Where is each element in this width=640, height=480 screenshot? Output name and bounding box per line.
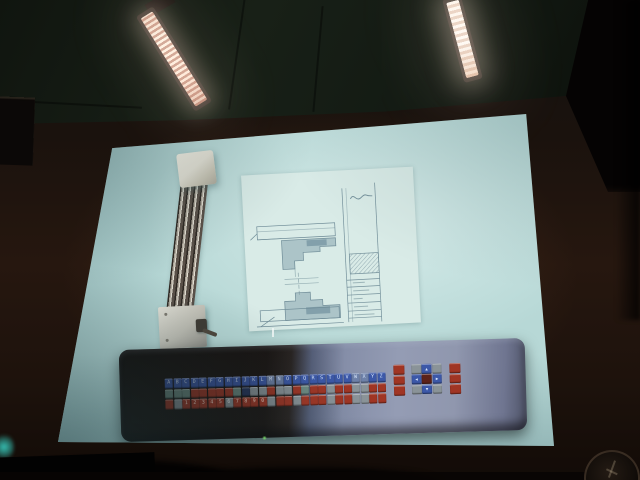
direction-pad: ▴◂▸▾ <box>411 363 442 394</box>
key <box>309 385 317 395</box>
drawing-sheet <box>241 167 421 332</box>
plotter-carriage <box>158 305 207 349</box>
key <box>343 384 351 394</box>
key-S: S <box>318 374 326 384</box>
key-D: D <box>190 378 198 388</box>
key <box>173 389 181 399</box>
key <box>190 388 198 398</box>
key <box>241 387 249 397</box>
key <box>293 396 301 406</box>
key-2: 2 <box>191 399 199 409</box>
key <box>450 373 461 383</box>
key <box>369 383 377 393</box>
key-5: 5 <box>216 398 224 408</box>
technical-drawing <box>241 167 421 332</box>
key <box>411 364 421 374</box>
key-◂: ◂ <box>412 374 422 384</box>
key <box>450 384 461 394</box>
key-6: 6 <box>225 398 233 408</box>
key-▴: ▴ <box>422 364 432 374</box>
key <box>422 374 432 384</box>
key <box>258 386 266 396</box>
key-A: A <box>165 378 173 388</box>
key <box>318 385 326 395</box>
key <box>284 396 292 406</box>
key-E: E <box>199 377 207 387</box>
key-8: 8 <box>242 397 250 407</box>
key-F: F <box>207 377 215 387</box>
wall-speaker <box>0 96 35 165</box>
key <box>174 399 182 409</box>
key-3: 3 <box>199 399 207 409</box>
key-4: 4 <box>208 398 216 408</box>
plotter-top-box <box>176 150 217 188</box>
key <box>207 388 215 398</box>
photo-lecture-room: ABCDEFGHIJKLMNOPQRSTUVWXYZ 1234567890 ▴◂… <box>0 0 640 480</box>
key-P: P <box>292 375 300 385</box>
foreground-shadow <box>0 472 640 480</box>
pen-mark <box>272 328 274 337</box>
key-X: X <box>360 373 368 383</box>
key <box>301 385 309 395</box>
screw-icon <box>164 313 167 316</box>
key-G: G <box>216 377 224 387</box>
key-J: J <box>241 376 249 386</box>
key-U: U <box>335 373 343 383</box>
key-R: R <box>309 374 317 384</box>
key-O: O <box>284 375 292 385</box>
keyboard-console: ABCDEFGHIJKLMNOPQRSTUVWXYZ 1234567890 ▴◂… <box>119 338 528 442</box>
key <box>335 384 343 394</box>
key <box>352 383 360 393</box>
key-W: W <box>352 373 360 383</box>
key <box>335 395 343 405</box>
key <box>344 394 352 404</box>
key <box>432 363 442 373</box>
key-0: 0 <box>259 397 267 407</box>
key-B: B <box>173 378 181 388</box>
key <box>352 394 360 404</box>
plotter-rails <box>165 182 207 322</box>
function-column-left <box>393 365 405 396</box>
key <box>377 383 385 393</box>
key-1: 1 <box>182 399 190 409</box>
key <box>369 394 377 404</box>
key <box>267 397 275 407</box>
key <box>360 383 368 393</box>
key <box>165 389 173 399</box>
key <box>432 384 442 394</box>
carriage-handle <box>202 328 217 337</box>
key <box>292 385 300 395</box>
key <box>267 386 275 396</box>
projection-screen: ABCDEFGHIJKLMNOPQRSTUVWXYZ 1234567890 ▴◂… <box>58 114 555 448</box>
key <box>361 394 369 404</box>
key <box>301 396 309 406</box>
key-K: K <box>250 376 258 386</box>
key-C: C <box>182 378 190 388</box>
key <box>449 363 460 373</box>
key <box>412 385 422 395</box>
key-N: N <box>275 375 283 385</box>
key <box>318 395 326 405</box>
key <box>393 365 404 375</box>
key-▸: ▸ <box>432 374 442 384</box>
key <box>199 388 207 398</box>
key-▾: ▾ <box>422 384 432 394</box>
key-Z: Z <box>377 372 385 382</box>
right-wall-shadow <box>616 0 640 320</box>
screw-icon <box>166 339 169 342</box>
key <box>275 386 283 396</box>
green-speck <box>262 436 267 440</box>
key-I: I <box>233 376 241 386</box>
key <box>276 396 284 406</box>
key-Q: Q <box>301 374 309 384</box>
key <box>310 395 318 405</box>
key <box>394 386 405 396</box>
key <box>250 387 258 397</box>
key <box>394 375 405 385</box>
key-9: 9 <box>250 397 258 407</box>
key-V: V <box>343 373 351 383</box>
key <box>182 389 190 399</box>
key <box>378 393 386 403</box>
function-column-right <box>449 363 461 394</box>
key-L: L <box>258 376 266 386</box>
key <box>327 395 335 405</box>
key <box>165 400 173 410</box>
key-Y: Y <box>369 372 377 382</box>
key-M: M <box>267 375 275 385</box>
key <box>216 388 224 398</box>
key <box>326 384 334 394</box>
key <box>224 387 232 397</box>
key <box>284 386 292 396</box>
key-T: T <box>326 374 334 384</box>
key-H: H <box>224 377 232 387</box>
key-7: 7 <box>233 398 241 408</box>
key <box>233 387 241 397</box>
